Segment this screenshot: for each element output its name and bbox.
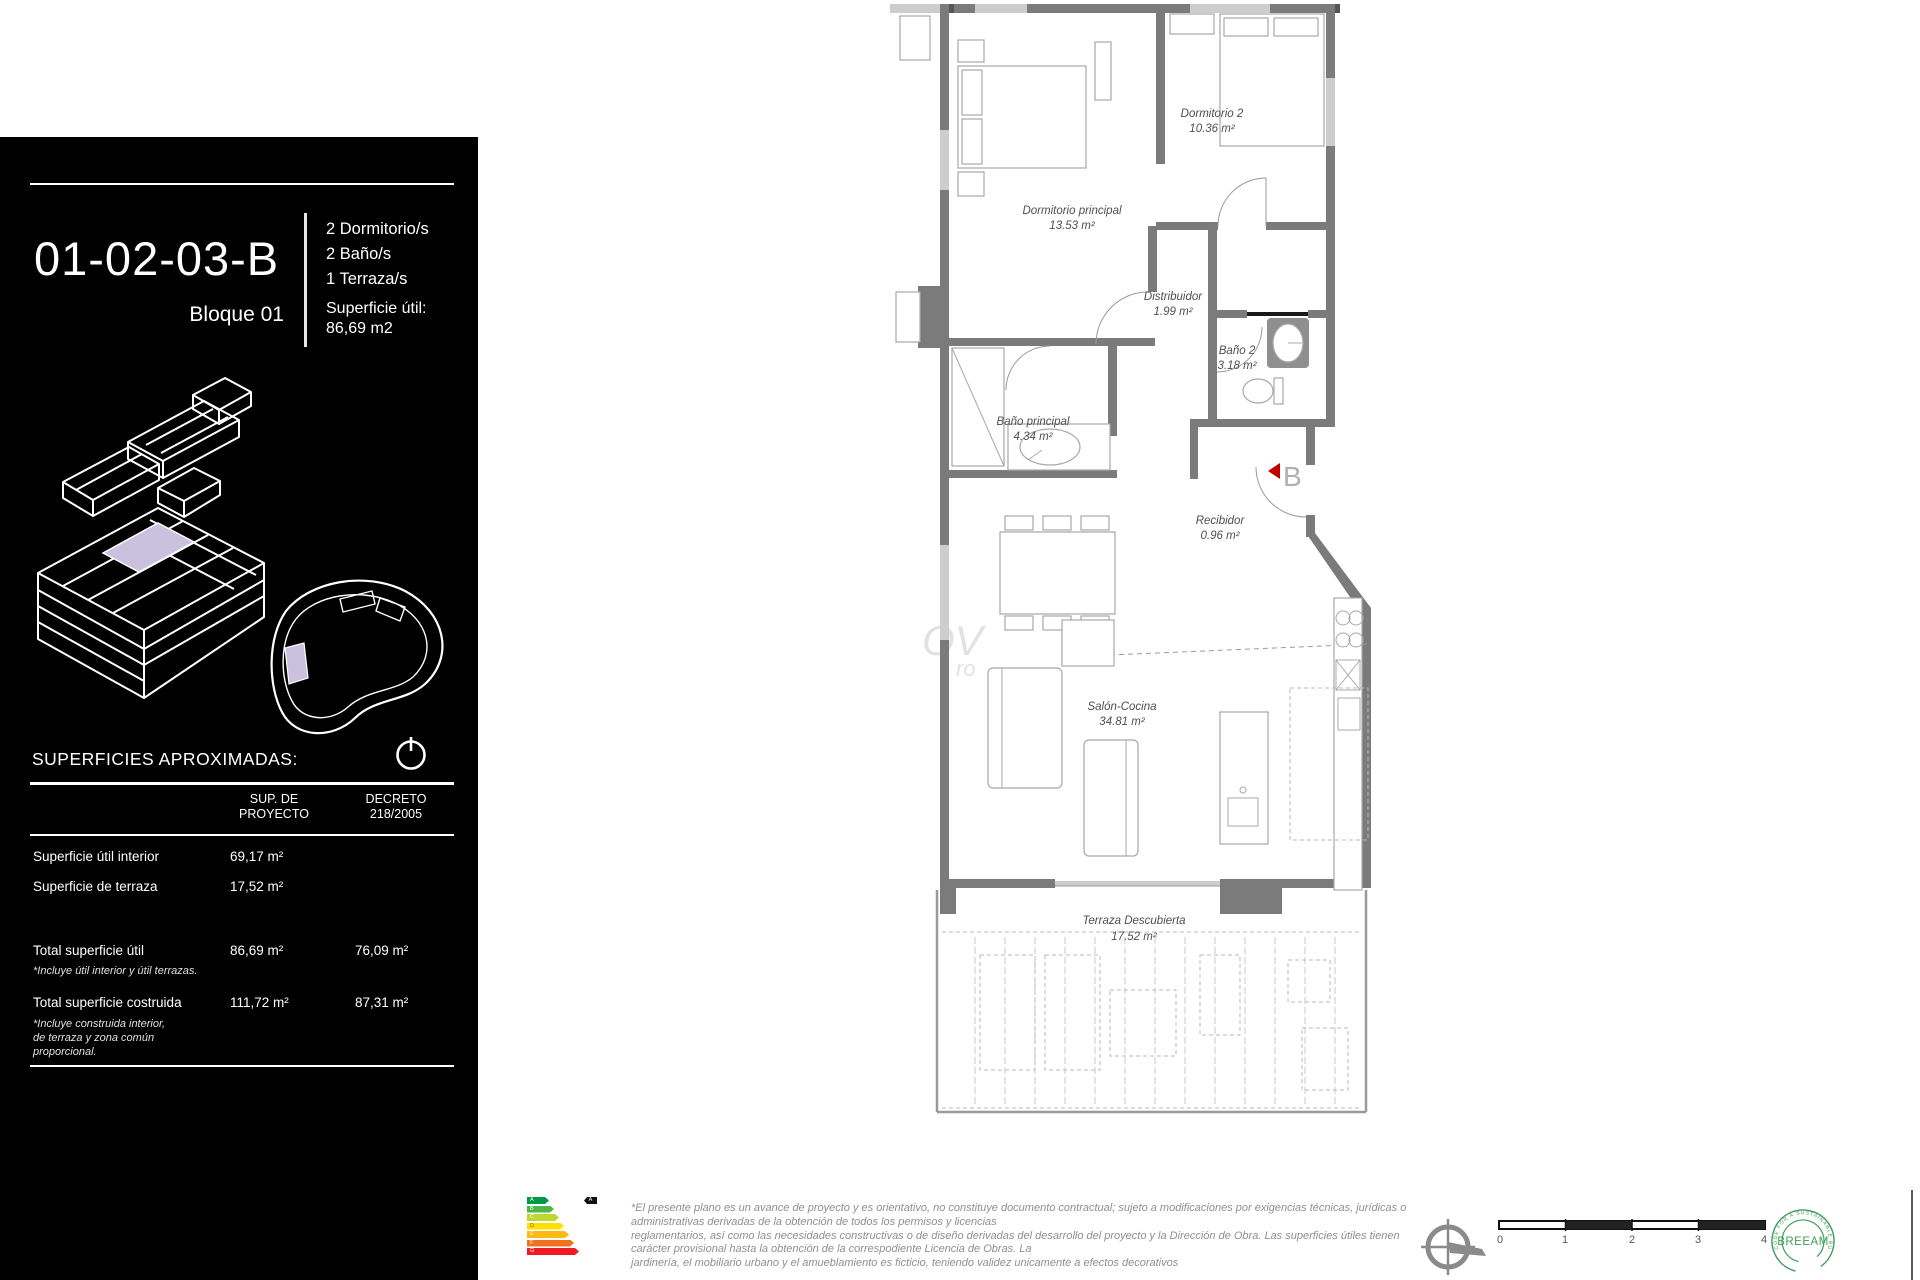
floorplan-sheet: { "panel": { "unit_code": "01-02-03-B", … <box>0 0 1920 1280</box>
entry-letter: B <box>1283 461 1302 492</box>
scale-tick-2: 2 <box>1622 1234 1642 1246</box>
disclaimer-text: *El presente plano es un avance de proye… <box>631 1202 1441 1271</box>
watermark: OV ro <box>922 617 987 681</box>
svg-text:13.53 m²: 13.53 m² <box>1049 220 1096 232</box>
energy-bar-e: E <box>527 1231 569 1238</box>
info-panel: 01-02-03-B 2 Dormitorio/s 2 Baño/s 1 Ter… <box>0 137 478 1280</box>
svg-text:0.96 m²: 0.96 m² <box>1201 530 1241 542</box>
label-dormitorio-2: Dormitorio 2 <box>1181 108 1244 120</box>
label-recibidor: Recibidor <box>1196 515 1246 527</box>
scale-tick-3: 3 <box>1688 1234 1708 1246</box>
scale-bar: 0 1 2 3 4 <box>1498 1218 1766 1252</box>
label-bano-principal: Baño principal <box>997 416 1070 428</box>
row-total-util-label: Total superficie útil <box>33 943 144 958</box>
svg-text:4.34 m²: 4.34 m² <box>1014 431 1054 443</box>
svg-text:17.52 m²: 17.52 m² <box>1111 931 1158 943</box>
scale-tick-1: 1 <box>1555 1234 1575 1246</box>
table-rule-top <box>30 782 454 785</box>
svg-text:1.99 m²: 1.99 m² <box>1154 306 1194 318</box>
building-axonometric-illustration <box>8 349 458 741</box>
entry-arrow-icon <box>1268 463 1280 479</box>
feature-terraces: 1 Terraza/s <box>326 267 429 292</box>
column-header-decreto: DECRETO 218/2005 <box>344 792 448 822</box>
row-util-interior-proyecto: 69,17 m² <box>230 849 283 864</box>
disclaimer-line: administrativas derivadas de la obtenció… <box>631 1216 1441 1230</box>
header-divider <box>304 213 307 347</box>
sheet-edge-line <box>1911 1190 1913 1280</box>
surface-summary: Superficie útil: 86,69 m2 <box>326 299 427 339</box>
disclaimer-line: carácter provisional hasta la obtención … <box>631 1243 1441 1257</box>
surfaces-heading: SUPERFICIES APROXIMADAS: <box>32 749 298 770</box>
svg-text:OV: OV <box>922 617 987 664</box>
label-terraza: Terraza Descubierta <box>1082 915 1185 927</box>
panel-top-rule <box>30 183 454 185</box>
entry-marker: B <box>1268 461 1302 492</box>
row-terraza-label: Superficie de terraza <box>33 879 158 894</box>
energy-bar-d: D <box>527 1223 564 1230</box>
disclaimer-line: *El presente plano es un avance de proye… <box>631 1202 1441 1216</box>
energy-bar-a: A <box>527 1197 549 1204</box>
living-kitchen-furniture <box>988 516 1368 890</box>
label-bano-2: Baño 2 <box>1219 345 1256 357</box>
unit-features: 2 Dormitorio/s 2 Baño/s 1 Terraza/s <box>326 217 429 292</box>
surface-label: Superficie útil: <box>326 299 427 319</box>
svg-text:ro: ro <box>956 656 976 681</box>
floor-plan: OV ro <box>750 0 1410 1140</box>
disclaimer-line: reglamentarios, así como las necesidades… <box>631 1230 1441 1244</box>
energy-bar-g: G <box>527 1248 579 1255</box>
energy-bar-f: F <box>527 1240 574 1247</box>
energy-rating-label: A B C D E F G A <box>527 1197 597 1263</box>
table-rule-header <box>30 834 454 836</box>
unit-code: 01-02-03-B <box>34 231 279 286</box>
building-lines <box>38 378 442 733</box>
compass-icon <box>1420 1216 1500 1280</box>
disclaimer-line: jardinería, el mobiliario urbano y el am… <box>631 1257 1441 1271</box>
row-terraza-proyecto: 17,52 m² <box>230 879 283 894</box>
row-util-interior-label: Superficie útil interior <box>33 849 159 864</box>
label-distribuidor: Distribuidor <box>1144 291 1203 303</box>
row-total-costruida-decreto: 87,31 m² <box>355 995 408 1010</box>
energy-rating-marker: A <box>584 1197 597 1204</box>
scale-bar-graphic <box>1498 1218 1766 1232</box>
table-rule-bottom <box>30 1065 454 1067</box>
row-total-costruida-note: *Incluye construida interior, de terraza… <box>33 1017 165 1059</box>
highlighted-unit-siteplan <box>285 643 308 684</box>
pergola-slats <box>950 935 1355 1107</box>
row-total-util-note: *Incluye útil interior y útil terrazas. <box>33 964 197 978</box>
row-total-costruida-proyecto: 111,72 m² <box>230 995 289 1010</box>
scale-tick-0: 0 <box>1490 1234 1510 1246</box>
bathroom-principal-fixtures <box>952 348 1110 470</box>
energy-bar-b: B <box>527 1206 554 1213</box>
row-total-util-decreto: 76,09 m² <box>355 943 408 958</box>
surface-value: 86,69 m2 <box>326 319 427 339</box>
svg-text:10.36 m²: 10.36 m² <box>1189 123 1236 135</box>
feature-bathrooms: 2 Baño/s <box>326 242 429 267</box>
row-total-util-proyecto: 86,69 m² <box>230 943 283 958</box>
row-total-costruida-label: Total superficie costruida <box>33 995 182 1010</box>
svg-text:34.81 m²: 34.81 m² <box>1099 716 1146 728</box>
label-dormitorio-principal: Dormitorio principal <box>1022 205 1122 217</box>
energy-bar-c: C <box>527 1214 559 1221</box>
breeam-logo: CODE FOR A SUSTAINABLE BUILT ENVIRONMENT… <box>1766 1204 1840 1278</box>
label-salon-cocina: Salón-Cocina <box>1087 701 1156 713</box>
north-power-icon <box>392 733 430 773</box>
feature-bedrooms: 2 Dormitorio/s <box>326 217 429 242</box>
bedroom-principal-furniture <box>958 40 1111 196</box>
block-name: Bloque 01 <box>36 303 284 327</box>
column-header-proyecto: SUP. DE PROYECTO <box>222 792 326 822</box>
breeam-wordmark: BREEAM <box>1777 1236 1829 1248</box>
svg-text:3.18 m²: 3.18 m² <box>1218 360 1258 372</box>
